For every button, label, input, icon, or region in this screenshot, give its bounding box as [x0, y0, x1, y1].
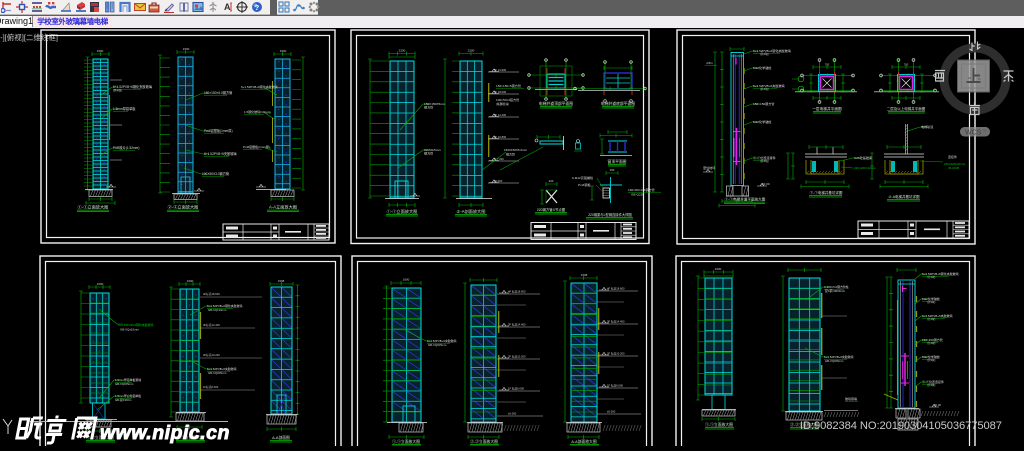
svg-text:±0.00: ±0.00 — [934, 403, 941, 407]
svg-text:(共4块): (共4块) — [927, 300, 935, 304]
svg-text:150X150X5.0mm: 150X150X5.0mm — [504, 148, 528, 152]
svg-text:±0.000: ±0.000 — [607, 410, 616, 414]
svg-text:100X50X3.0钢方管: 100X50X3.0钢方管 — [202, 171, 229, 176]
svg-text:电梯井道底部平面图: 电梯井道底部平面图 — [601, 101, 635, 106]
svg-text:1508: 1508 — [581, 273, 588, 277]
svg-text:3F 标高14.400: 3F 标高14.400 — [508, 323, 526, 327]
svg-text:②-②立面放大图: ②-②立面放大图 — [168, 204, 199, 211]
svg-text:1600: 1600 — [715, 267, 722, 271]
svg-text:(共4块): (共4块) — [113, 89, 122, 93]
svg-text:GB-Q235: GB-Q235 — [631, 193, 644, 197]
svg-text:A-A立面放大图: A-A立面放大图 — [269, 204, 297, 211]
svg-text:(共4块): (共4块) — [760, 87, 769, 91]
svg-text:2F 标高10.200: 2F 标高10.200 — [607, 352, 625, 356]
svg-text:2F 标高10.200: 2F 标高10.200 — [508, 355, 526, 359]
svg-text:(共4块): (共4块) — [760, 159, 769, 163]
svg-text:GB-提03±0m: GB-提03±0m — [115, 398, 132, 402]
svg-text:Pm6铝塑板(1mm厚): Pm6铝塑板(1mm厚) — [204, 128, 233, 133]
svg-text:②-A电梯井基坑详图: ②-A电梯井基坑详图 — [888, 194, 920, 199]
svg-text:一层电梯井平面图: 一层电梯井平面图 — [812, 106, 842, 111]
svg-text:3F 标高14.400: 3F 标高14.400 — [607, 320, 625, 324]
svg-text:±0.000: ±0.000 — [508, 412, 517, 416]
svg-text:PVB胶片(1.52mm): PVB胶片(1.52mm) — [113, 145, 139, 150]
svg-text:220: 220 — [549, 179, 554, 183]
svg-text:150×150×5.0钢方管: 150×150×5.0钢方管 — [204, 90, 232, 95]
svg-text:1500: 1500 — [97, 49, 104, 53]
svg-text:①-①立面放大图: ①-①立面放大图 — [78, 204, 109, 211]
svg-text:2200: 2200 — [468, 49, 475, 53]
svg-text:(共4块): (共4块) — [927, 383, 935, 387]
svg-text:150×150钢方管: 150×150钢方管 — [753, 101, 774, 106]
svg-text:①-①电梯井道平面放大图: ①-①电梯井道平面放大图 — [725, 197, 766, 202]
svg-text:4.8m: 4.8m — [706, 61, 713, 65]
svg-text:(共4块): (共4块) — [760, 52, 769, 56]
svg-text:45-Q345: 45-Q345 — [948, 166, 960, 170]
svg-text:(共4块): (共4块) — [927, 275, 935, 279]
svg-text:电梯轨道: 电梯轨道 — [921, 124, 933, 129]
svg-text:1600: 1600 — [97, 282, 104, 286]
svg-text:①-①立面放大图: ①-①立面放大图 — [387, 208, 418, 215]
svg-text:1500: 1500 — [183, 47, 190, 51]
svg-text:4F标高18.600: 4F标高18.600 — [203, 292, 220, 296]
svg-text:A: A — [224, 2, 231, 12]
svg-text:150: 150 — [610, 168, 615, 172]
svg-text:www.nipic.cn: www.nipic.cn — [100, 422, 230, 444]
svg-text:1600: 1600 — [403, 278, 410, 282]
svg-text:±0.00: ±0.00 — [762, 182, 770, 186]
svg-text:(共4块): (共4块) — [927, 341, 935, 345]
svg-text:①-①立面放大图: ①-①立面放大图 — [392, 439, 420, 444]
svg-text:钢方管: 钢方管 — [424, 105, 433, 110]
svg-text:2200: 2200 — [399, 49, 406, 53]
svg-text:1500: 1500 — [280, 49, 287, 53]
svg-text:160×80×4×6钢方管: 160×80×4×6钢方管 — [628, 187, 655, 192]
svg-text:?: ? — [255, 3, 260, 12]
svg-text:(氟碳喷涂): (氟碳喷涂) — [496, 102, 509, 106]
svg-text:6+1.52PVB+6钢化夹胶玻璃: 6+1.52PVB+6钢化夹胶玻璃 — [241, 84, 278, 89]
svg-text:电梯井道顶部平面图: 电梯井道顶部平面图 — [539, 101, 573, 106]
svg-text:(共4块): (共4块) — [927, 358, 935, 362]
svg-text:钢方管: 钢方管 — [506, 152, 515, 157]
svg-text:M12化学锚栓: M12化学锚栓 — [753, 65, 771, 70]
svg-text:②-A剖面放大图: ②-A剖面放大图 — [457, 208, 486, 215]
svg-text:GB-XQ±10mm: GB-XQ±10mm — [208, 308, 227, 312]
svg-text:M12化学锚栓: M12化学锚栓 — [753, 119, 771, 124]
svg-text:①-①立面放大图: ①-①立面放大图 — [705, 422, 733, 427]
svg-text:连接件: 连接件 — [948, 154, 957, 159]
svg-text:Pm6铝塑板(1mm厚): Pm6铝塑板(1mm厚) — [243, 144, 270, 149]
svg-text:220×220×12mm: 220×220×12mm — [854, 166, 876, 170]
svg-text:(共4块): (共4块) — [927, 317, 935, 321]
svg-text:配A钢 GB±0mm: 配A钢 GB±0mm — [825, 289, 846, 293]
svg-text:1.5mm厚铝单板: 1.5mm厚铝单板 — [113, 106, 136, 111]
svg-text:Pm6钢板: Pm6钢板 — [578, 182, 591, 187]
svg-text:700: 700 — [904, 63, 909, 67]
svg-text:220钢方管X节点图: 220钢方管X节点图 — [537, 207, 566, 212]
svg-text:6+1.52PVB+6钢化夹胶玻璃: 6+1.52PVB+6钢化夹胶玻璃 — [118, 322, 153, 327]
svg-text:WCS: WCS — [965, 130, 982, 137]
svg-text:①-①电梯井基坑详图: ①-①电梯井基坑详图 — [810, 190, 843, 195]
svg-text:6-M12高强螺栓: 6-M12高强螺栓 — [572, 175, 593, 180]
svg-text:[-][俯视][二维线框]: [-][俯视][二维线框] — [0, 32, 58, 42]
svg-text:GB-XQ±05mm: GB-XQ±05mm — [115, 382, 134, 386]
svg-text:GB-XQ±05mm: GB-XQ±05mm — [208, 371, 227, 375]
svg-text:4F 标高18.600: 4F 标高18.600 — [508, 290, 526, 294]
svg-text:6+1.52PVB+6钢化夹胶玻璃: 6+1.52PVB+6钢化夹胶玻璃 — [753, 48, 791, 53]
svg-text:6+1.52PVB+6夹胶玻璃: 6+1.52PVB+6夹胶玻璃 — [753, 83, 785, 88]
svg-text:A-A剖面放大图: A-A剖面放大图 — [571, 439, 597, 444]
svg-text:1F标高6.000: 1F标高6.000 — [203, 385, 219, 389]
svg-text:二层及以上电梯井平面图: 二层及以上电梯井平面图 — [887, 106, 926, 111]
svg-text:700: 700 — [825, 63, 830, 67]
svg-text:GB-XQ±10mm: GB-XQ±10mm — [120, 328, 140, 332]
svg-text:1F 标高6.000: 1F 标高6.000 — [607, 384, 623, 388]
svg-text:C25砼基础梁: C25砼基础梁 — [854, 155, 872, 160]
svg-text:150×150×5钢方管: 150×150×5钢方管 — [496, 83, 521, 88]
svg-text:2F标高10.200: 2F标高10.200 — [203, 353, 220, 357]
svg-text:GB-XQ±05mm: GB-XQ±05mm — [428, 343, 447, 347]
svg-text:②-②立面放大图: ②-②立面放大图 — [470, 439, 498, 444]
svg-text:玻璃幕墙: 玻璃幕墙 — [845, 396, 857, 401]
svg-text:钢方管: 钢方管 — [424, 151, 433, 156]
svg-text:窗顶平面图: 窗顶平面图 — [608, 159, 627, 164]
svg-text:室外地坪: 室外地坪 — [703, 165, 715, 170]
svg-text:3F标高14.400: 3F标高14.400 — [203, 323, 220, 327]
svg-text:GB-XQ±05mm: GB-XQ±05mm — [825, 359, 844, 363]
svg-text:1600: 1600 — [187, 279, 194, 283]
svg-text:4F 标高18.600: 4F 标高18.600 — [607, 287, 625, 291]
svg-text:1.5钢化玻璃(10mm): 1.5钢化玻璃(10mm) — [244, 109, 271, 114]
svg-text:1F 标高6.000: 1F 标高6.000 — [508, 387, 524, 391]
svg-text:220钢梁与L型钢连接件大样图: 220钢梁与L型钢连接件大样图 — [588, 212, 632, 217]
svg-text:6+1.52PVB+6夹胶玻璃: 6+1.52PVB+6夹胶玻璃 — [204, 151, 237, 156]
svg-text:1508: 1508 — [278, 279, 285, 283]
